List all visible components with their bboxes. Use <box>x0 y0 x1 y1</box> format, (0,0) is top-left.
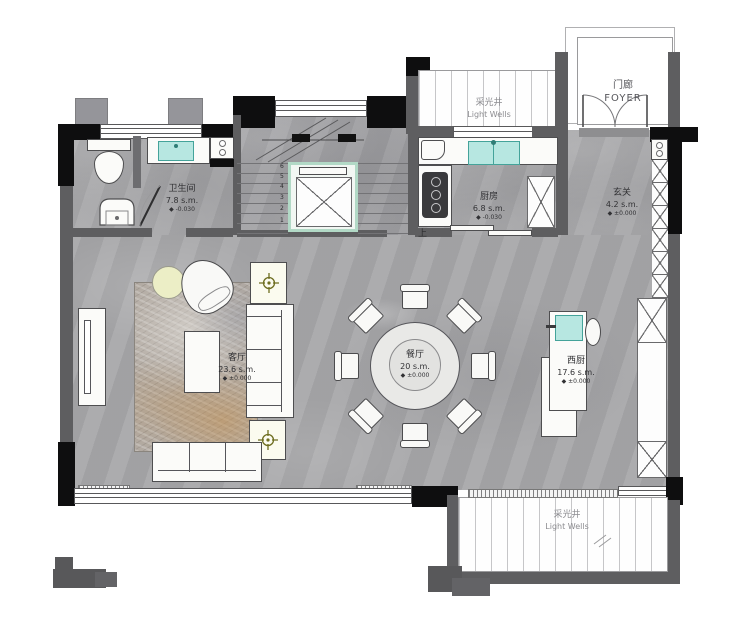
wall-stub <box>168 98 203 126</box>
island-sink <box>555 315 583 341</box>
room-area: 23.6 s.m. <box>218 365 255 375</box>
room-level: ◆ ±0.000 <box>401 372 430 380</box>
light-well-slash-marks <box>592 532 614 548</box>
room-name: 厨房 <box>480 192 498 204</box>
cabinet-cell <box>652 229 668 252</box>
dining-chair <box>471 353 491 379</box>
room-name: 采光井 <box>553 510 580 522</box>
wall-segment <box>532 228 558 237</box>
room-label-kitchen: 厨房 6.8 s.m. ◆ -0.030 <box>473 192 505 222</box>
room-name: 玄关 <box>613 188 631 200</box>
step-number: 5 <box>280 174 284 180</box>
appliance-knob <box>219 149 226 156</box>
room-name: 卫生间 <box>168 184 195 196</box>
faucet <box>174 144 178 148</box>
wall-stub <box>95 572 117 587</box>
burner <box>431 190 441 200</box>
refrigerator <box>527 176 555 228</box>
wall-segment <box>666 142 682 234</box>
step-number: 6 <box>280 164 284 170</box>
toilet-tank <box>87 139 131 151</box>
step-number: 3 <box>280 195 284 201</box>
appliance-knob <box>656 150 663 157</box>
cabinet-cell <box>652 275 668 298</box>
room-name: 采光井 <box>475 98 502 110</box>
cabinet-cell <box>638 299 666 343</box>
room-name: 客厅 <box>228 353 246 365</box>
floor-plan-canvas: 采光井 Light Wells 门廊 FOYER 6 5 4 3 2 1 上 <box>0 0 740 632</box>
cabinet-cell <box>652 206 668 229</box>
sliding-door-panel <box>488 230 532 236</box>
wall-segment <box>186 228 233 237</box>
room-level: ◆ ±0.000 <box>223 375 252 383</box>
room-name-en: FOYER <box>604 92 641 105</box>
room-label-bathroom: 卫生间 7.8 s.m. ◆ -0.030 <box>166 184 198 214</box>
stair-flight-lines <box>242 112 382 164</box>
appliance-knob <box>219 140 226 147</box>
cabinet-cell <box>652 183 668 206</box>
room-level: ◆ ±0.000 <box>562 378 591 386</box>
door-leaf <box>136 182 166 230</box>
elevator-door <box>299 167 347 175</box>
shoe-cabinet-strip <box>652 160 668 298</box>
stair-treads-right <box>358 163 408 235</box>
sofa-divider <box>247 316 282 317</box>
room-label-dining: 餐厅 20 s.m. ◆ ±0.000 <box>400 350 430 380</box>
room-area: 20 s.m. <box>400 362 430 372</box>
room-area: 17.6 s.m. <box>557 368 594 378</box>
room-level: ◆ -0.030 <box>476 214 502 222</box>
step-number: 2 <box>280 206 284 212</box>
sofa-divider <box>225 443 226 472</box>
door-threshold <box>579 128 649 137</box>
faucet <box>491 140 496 145</box>
room-area: 6.8 s.m. <box>473 204 505 214</box>
wall-partition <box>133 136 141 188</box>
elevator-cab <box>296 177 352 227</box>
room-label-foyer: 门廊 FOYER <box>604 79 641 105</box>
room-area: 4.2 s.m. <box>606 200 638 210</box>
wall-fixture <box>62 141 71 154</box>
dining-chair <box>402 289 428 309</box>
sofa-divider <box>247 405 282 406</box>
room-name-en: Light Wells <box>545 522 588 532</box>
room-name: 餐厅 <box>406 350 424 362</box>
room-label-light-well-bottom: 采光井 Light Wells <box>545 510 588 532</box>
room-name-en: Light Wells <box>467 110 510 120</box>
room-name: 西厨 <box>567 356 585 368</box>
burner <box>431 203 441 213</box>
wall-segment <box>668 500 680 584</box>
corner-basin <box>421 140 445 160</box>
wall-segment <box>58 124 74 186</box>
wall-segment <box>555 52 568 134</box>
bar-stool <box>585 318 601 346</box>
sofa-backrest <box>158 470 256 481</box>
tv-screen <box>84 320 91 394</box>
cabinet-cell <box>638 442 666 477</box>
step-number: 1 <box>280 218 284 224</box>
burner <box>431 177 441 187</box>
appliance-knob <box>656 142 663 149</box>
room-level: ◆ -0.030 <box>169 206 195 214</box>
appliance-dark-bar <box>210 159 234 167</box>
cabinet-cell <box>652 252 668 275</box>
cabinet-cell <box>638 343 666 442</box>
cabinet-cell <box>652 160 668 183</box>
sofa-divider <box>247 349 282 350</box>
room-label-entry: 玄关 4.2 s.m. ◆ ±0.000 <box>606 188 638 218</box>
sofa-secondary <box>152 442 262 482</box>
dining-chair <box>339 353 359 379</box>
sink-divider <box>493 142 494 164</box>
faucet-arm <box>546 325 556 328</box>
room-area: 7.8 s.m. <box>166 196 198 206</box>
compass-lamp-icon <box>258 272 280 294</box>
wall-segment <box>60 186 73 442</box>
coffee-table <box>184 331 220 393</box>
sofa-backrest <box>281 310 293 412</box>
light-well-bottom <box>458 497 668 572</box>
stairs-up-label: 上 <box>418 226 427 239</box>
wall-segment <box>668 52 680 132</box>
room-level: ◆ ±0.000 <box>608 210 637 218</box>
room-name: 门廊 <box>613 79 633 92</box>
wall-stub <box>75 98 108 126</box>
room-label-west-kitchen: 西厨 17.6 s.m. ◆ ±0.000 <box>557 356 594 386</box>
room-label-light-well-top: 采光井 Light Wells <box>467 98 510 120</box>
tall-cabinet-column <box>637 298 667 478</box>
dining-chair <box>402 423 428 443</box>
wall-stub <box>452 578 490 596</box>
room-label-living: 客厅 23.6 s.m. ◆ ±0.000 <box>218 353 255 383</box>
wall-segment <box>58 442 75 506</box>
tv-cabinet <box>78 308 106 406</box>
step-number: 4 <box>280 184 284 190</box>
window-living <box>74 488 412 504</box>
wall-stub <box>55 557 73 569</box>
window <box>618 486 668 496</box>
wall-segment <box>668 234 680 479</box>
wall-hatch <box>468 489 618 498</box>
sofa-divider <box>189 443 190 472</box>
wall-segment <box>406 76 418 134</box>
mop-basin <box>94 193 140 229</box>
